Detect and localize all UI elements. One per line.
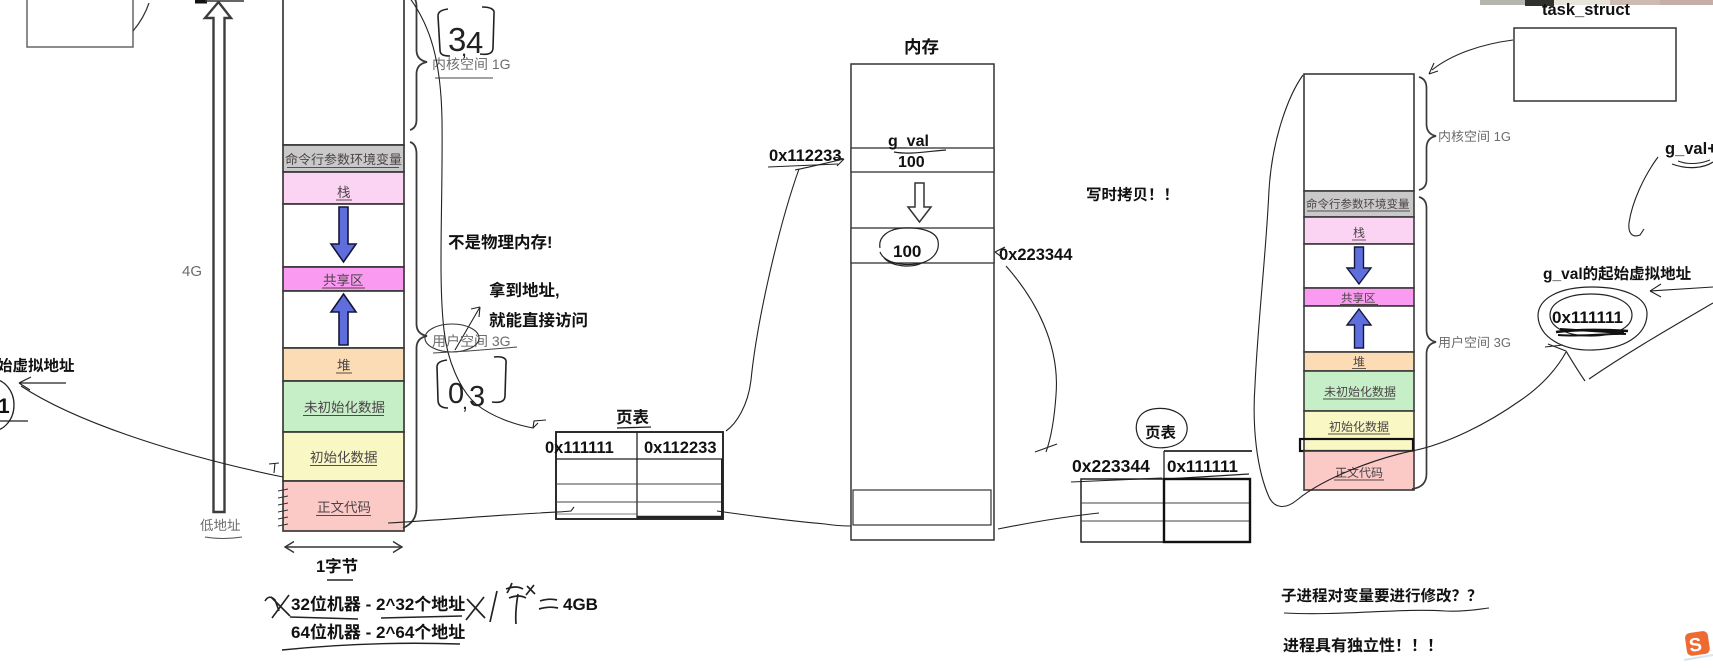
svg-text:0x111111: 0x111111 bbox=[1167, 457, 1238, 476]
svg-text:不是物理内存!: 不是物理内存! bbox=[448, 233, 553, 252]
svg-text:1: 1 bbox=[0, 395, 10, 418]
svg-text:页表: 页表 bbox=[616, 408, 650, 427]
svg-text:0x111111: 0x111111 bbox=[1552, 308, 1623, 327]
svg-text:命令行参数环境变量: 命令行参数环境变量 bbox=[285, 152, 402, 167]
svg-text:就能直接访问: 就能直接访问 bbox=[489, 311, 588, 330]
svg-text:拿到地址,: 拿到地址, bbox=[489, 281, 560, 300]
svg-text:32位机器 - 2^32个地址: 32位机器 - 2^32个地址 bbox=[291, 595, 465, 614]
svg-text:堆: 堆 bbox=[337, 358, 351, 373]
svg-text:0x111111: 0x111111 bbox=[545, 439, 614, 457]
svg-text:100: 100 bbox=[898, 154, 925, 171]
svg-text:100: 100 bbox=[893, 242, 921, 261]
svg-text:进程具有独立性！！！: 进程具有独立性！！！ bbox=[1283, 637, 1443, 655]
svg-text:内核空间 1G: 内核空间 1G bbox=[1438, 129, 1511, 144]
svg-text:0x112233: 0x112233 bbox=[644, 439, 717, 457]
svg-text:1字节: 1字节 bbox=[316, 557, 358, 576]
svg-text:task_struct: task_struct bbox=[1542, 1, 1631, 19]
svg-text:栈: 栈 bbox=[337, 185, 351, 200]
svg-text:栈: 栈 bbox=[1353, 226, 1365, 240]
svg-text:页表: 页表 bbox=[1145, 424, 1177, 442]
svg-text:4GB: 4GB bbox=[563, 595, 598, 614]
svg-text:g_val的起始虚拟地址: g_val的起始虚拟地址 bbox=[1543, 265, 1692, 283]
svg-text:写时拷贝！！: 写时拷贝！！ bbox=[1086, 186, 1179, 204]
svg-text:初始化数据: 初始化数据 bbox=[1329, 420, 1389, 434]
svg-text:g_val+4: g_val+4 bbox=[1665, 140, 1713, 158]
svg-text:64位机器 - 2^64个地址: 64位机器 - 2^64个地址 bbox=[291, 623, 465, 642]
svg-text:4G: 4G bbox=[182, 263, 202, 280]
svg-text:用户空间 3G: 用户空间 3G bbox=[432, 333, 511, 349]
svg-text:共享区: 共享区 bbox=[323, 273, 364, 288]
svg-text:,: , bbox=[462, 391, 468, 414]
svg-text:命令行参数环境变量: 命令行参数环境变量 bbox=[1306, 198, 1410, 211]
svg-text:4: 4 bbox=[466, 25, 483, 60]
svg-text:未初始化数据: 未初始化数据 bbox=[1324, 385, 1396, 399]
svg-text:内存: 内存 bbox=[904, 37, 939, 57]
svg-text:未初始化数据: 未初始化数据 bbox=[304, 400, 385, 415]
svg-text:始虚拟地址: 始虚拟地址 bbox=[0, 357, 75, 375]
svg-text:用户空间 3G: 用户空间 3G bbox=[1438, 335, 1511, 350]
svg-text:0x223344: 0x223344 bbox=[1072, 456, 1150, 476]
svg-text:正文代码: 正文代码 bbox=[1335, 466, 1383, 480]
svg-text:子进程对变量要进行修改？？: 子进程对变量要进行修改？？ bbox=[1281, 587, 1483, 605]
svg-text:正文代码: 正文代码 bbox=[317, 500, 371, 515]
svg-text:低地址: 低地址 bbox=[200, 518, 241, 533]
svg-text:g_val: g_val bbox=[888, 133, 929, 150]
svg-text:共享区: 共享区 bbox=[1341, 292, 1376, 305]
svg-text:堆: 堆 bbox=[1353, 355, 1365, 369]
svg-text:初始化数据: 初始化数据 bbox=[310, 450, 378, 465]
svg-text:0x223344: 0x223344 bbox=[999, 246, 1073, 264]
svg-text:3: 3 bbox=[469, 381, 485, 413]
